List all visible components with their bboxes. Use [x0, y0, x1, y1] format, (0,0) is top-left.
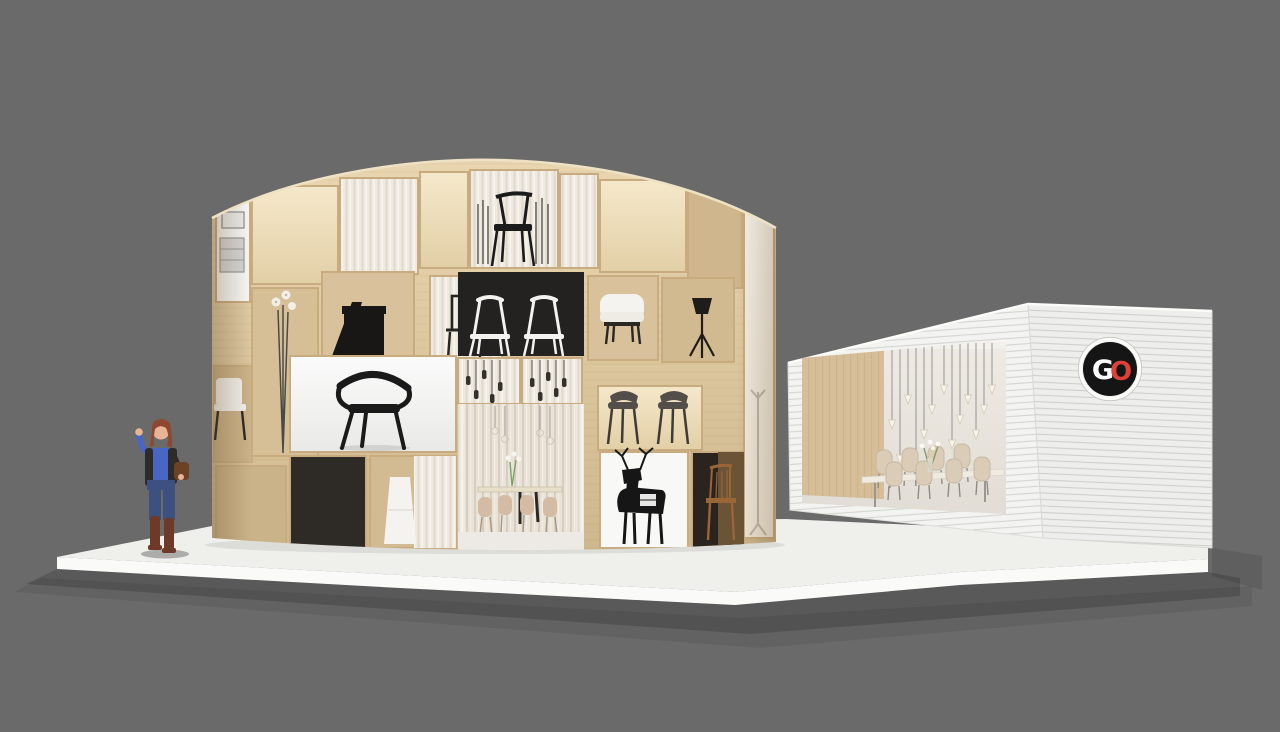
exhibition-scene: G O [0, 0, 1280, 732]
go-logo-badge: G O [1079, 338, 1142, 401]
pavilion-shading [212, 160, 776, 550]
leg-left [149, 486, 161, 520]
boot-right [164, 518, 174, 550]
interior-back-wall [884, 330, 1008, 520]
building-interior [802, 330, 1008, 520]
foot-right [162, 548, 176, 553]
waving-hand [135, 428, 143, 436]
foot-left [148, 545, 162, 550]
circular-pavilion [205, 155, 785, 565]
logo-letter-o: O [1110, 357, 1132, 387]
boot-left [150, 516, 160, 548]
hand [178, 474, 184, 480]
leg-right [163, 486, 175, 520]
